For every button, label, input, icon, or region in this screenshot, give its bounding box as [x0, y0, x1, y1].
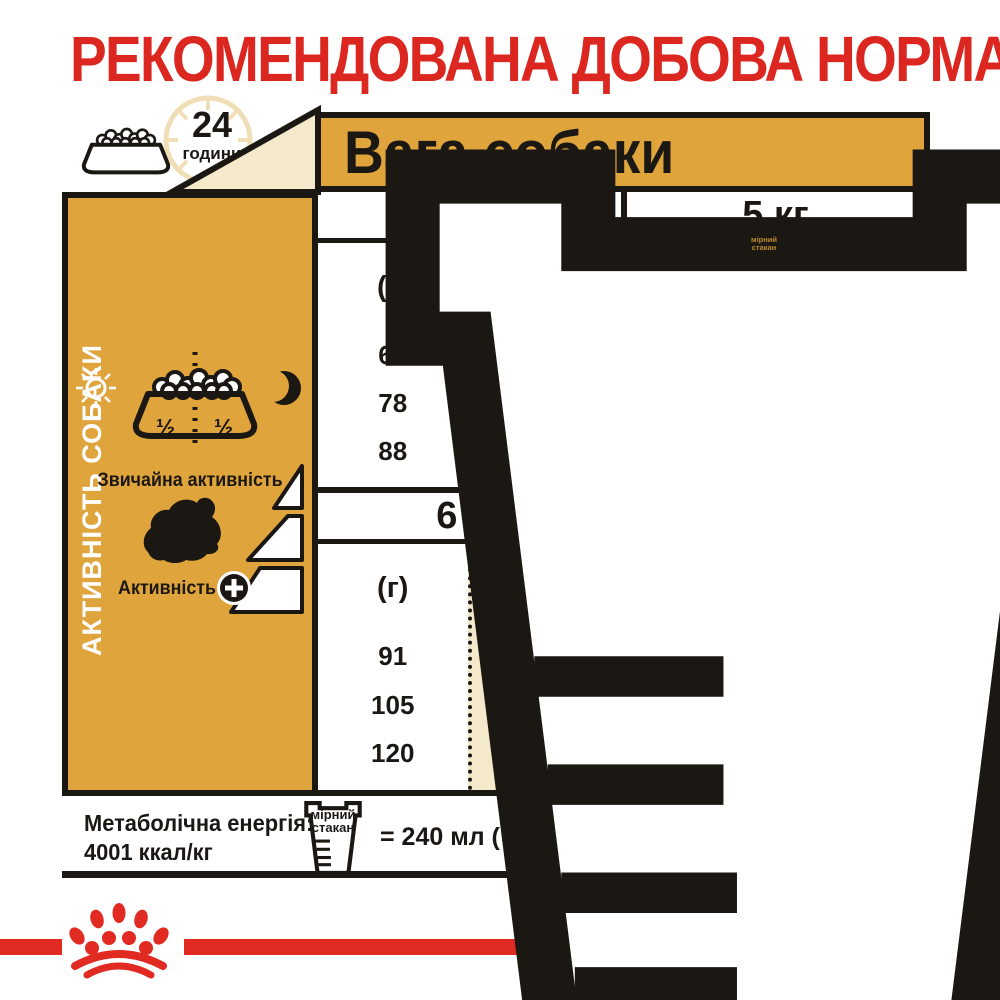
plus-badge-icon — [216, 570, 252, 606]
sidebar-vertical-label: АКТИВНІСТЬ СОБАКИ — [77, 426, 108, 656]
measuring-cup-icon: мірнийстакан — [264, 136, 1000, 1000]
brand-crown-paw-logo — [56, 901, 182, 981]
page-title: РЕКОМЕНДОВАНА ДОБОВА НОРМА — [70, 22, 930, 96]
feeding-guide-page: РЕКОМЕНДОВАНА ДОБОВА НОРМА 24 години мір… — [0, 0, 1000, 1000]
brand-band-left — [0, 939, 62, 955]
half-portion-right: ½ — [214, 414, 233, 441]
measuring-cup-label: мірнийстакан — [264, 236, 1000, 252]
dog-silhouette-icon — [136, 492, 228, 566]
high-activity-label: Активність — [94, 578, 216, 600]
sun-icon — [74, 366, 118, 410]
half-portion-left: ½ — [156, 414, 175, 441]
split-meal-bowl-icon — [120, 348, 270, 460]
